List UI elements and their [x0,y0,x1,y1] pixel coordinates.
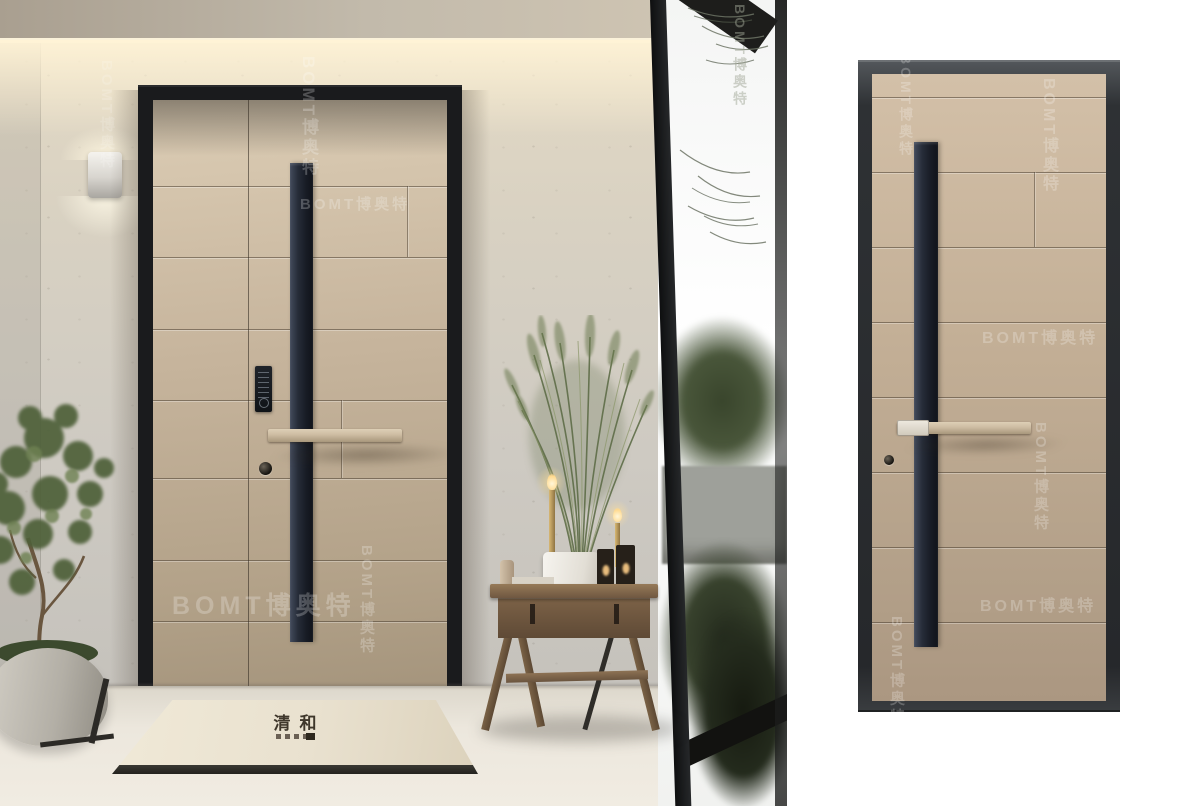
doormat-front-edge [112,765,478,774]
handle-shadow [264,444,447,466]
door-leaf-seam [248,100,249,706]
lock-fingerprint-ring [259,398,269,408]
door-handle [268,429,402,442]
door-groove [872,172,1106,174]
product-door-panel [872,74,1106,701]
table-top [490,584,658,598]
door-groove [872,622,1106,624]
candle-lantern [616,545,635,589]
door-groove [872,322,1106,324]
handle-shadow [900,436,1071,454]
product-shot: BOMT博奥特 BOMT博奥特 BOMT博奥特 BOMT博奥特 BOMT博奥特 … [858,60,1120,712]
window-corner-frame [775,0,787,806]
door-groove-vertical [407,186,409,257]
doormat-subtext-seal [306,733,315,740]
tree-leaves [0,404,114,595]
handle-lock-body [897,420,929,436]
drawer-handle [530,604,535,624]
entry-scene: 清和 [0,0,787,806]
candlestick [549,490,555,556]
table-drawer [498,598,650,638]
door-groove-vertical [1034,172,1036,247]
keypad-buttons [258,372,269,398]
handle-stripe [290,163,313,642]
candle-lantern [597,549,614,589]
door-groove [872,547,1106,549]
product-photo: 清和 [0,0,1200,806]
doormat-text: 清和 [265,709,326,734]
keyhole [259,462,272,475]
drawer-handle [614,604,619,624]
branch-silhouettes [658,0,787,330]
door-groove [872,97,1106,99]
lantern-glow [602,565,609,576]
door-groove [872,472,1106,474]
door-panel [153,100,447,706]
door-groove [872,247,1106,249]
handle-stripe [914,142,938,647]
candle-flame [547,474,557,490]
pampas-grass [482,315,672,570]
smart-lock-keypad [255,366,272,412]
lantern-glow [622,563,629,574]
ceiling [0,0,666,40]
keyhole [884,455,894,465]
door-groove [872,397,1106,399]
doormat: 清和 [112,700,478,774]
candle-flame [613,508,622,522]
door-top-shadow [153,100,447,156]
